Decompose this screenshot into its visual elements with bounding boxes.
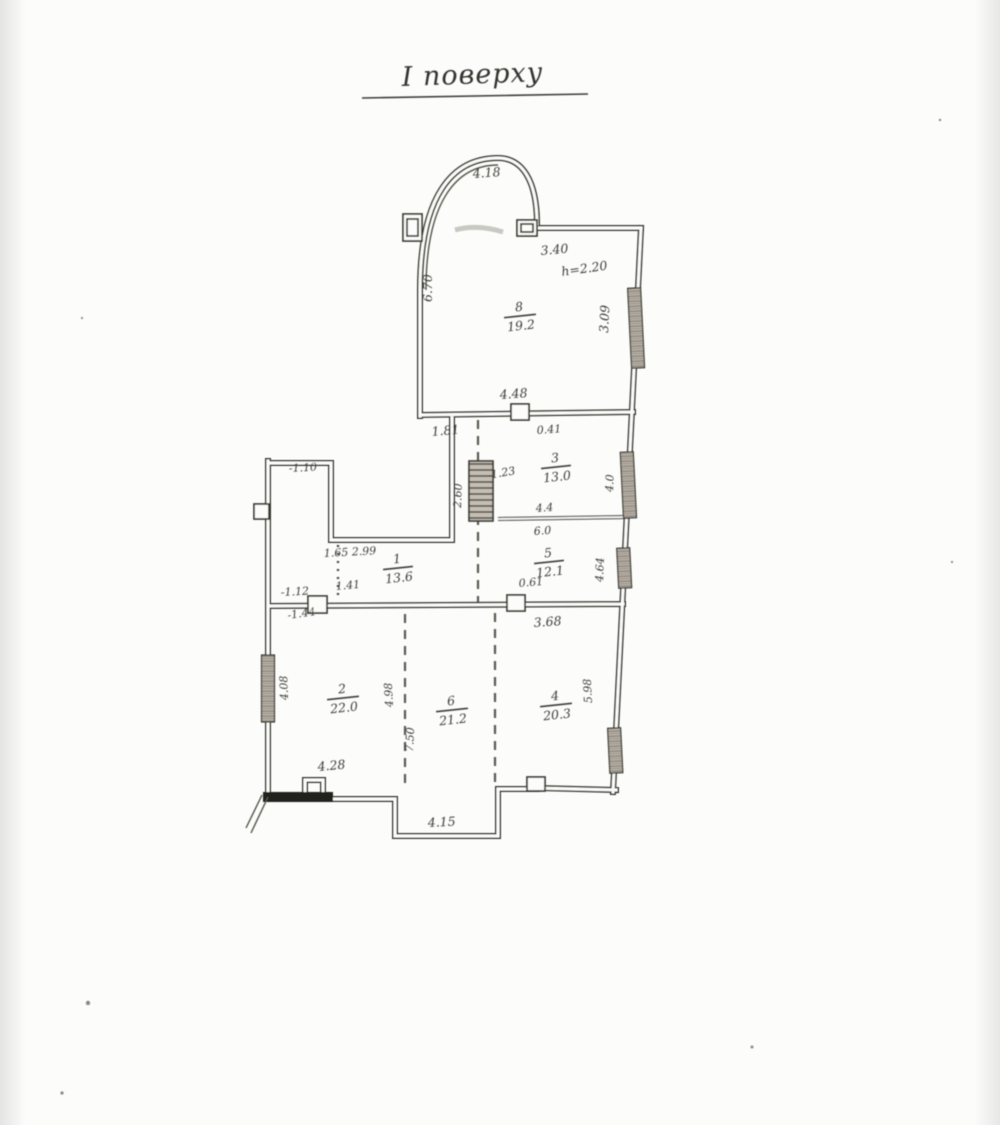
dim-door-left-level: -1.12 <box>280 585 309 599</box>
floor-plan-drawing: І поверху <box>0 0 1000 1125</box>
room-label-6: 6 21.2 <box>434 691 469 728</box>
outer-and-inner-walls <box>246 158 641 836</box>
dim-door-left-width: 1.41 <box>335 578 361 593</box>
corner-block-porch <box>527 777 545 791</box>
room-6-area: 21.2 <box>437 711 467 729</box>
pencil-smudge <box>455 227 503 232</box>
dim-span-left: 4.98 <box>382 682 396 708</box>
room-label-8: 8 19.2 <box>502 297 537 334</box>
door-block-top-entry-inner <box>521 224 533 232</box>
room-5-number: 5 <box>543 545 553 561</box>
door-block-toproom <box>511 404 529 420</box>
dim-notch-level: -1.10 <box>288 461 317 475</box>
room-label-4: 4 20.3 <box>538 686 573 723</box>
dim-opening-right: 0.41 <box>536 422 561 437</box>
dim-window-room3: 4.0 <box>603 474 617 493</box>
dim-hall-width: 3.68 <box>533 613 562 630</box>
dim-window-room5: 4.64 <box>593 557 607 583</box>
room-3-number: 3 <box>550 450 560 466</box>
dim-window-bottom-right: 5.98 <box>581 678 595 703</box>
room-3-area: 13.0 <box>542 468 571 486</box>
page-title: І поверху <box>400 57 544 93</box>
room-8-number: 8 <box>514 299 524 315</box>
dim-arc-width: 4.18 <box>471 164 501 181</box>
room-6-number: 6 <box>446 693 456 709</box>
dim-left-mark: -1.44 <box>287 605 317 622</box>
title-underline <box>362 94 588 98</box>
window-room3-right <box>620 452 636 519</box>
room-4-number: 4 <box>549 688 560 704</box>
dim-window-top-right: 3.09 <box>596 305 612 334</box>
room-1-area: 13.6 <box>384 569 413 587</box>
room-8-area: 19.2 <box>506 317 535 335</box>
dim-opening-left: 1.81 <box>431 422 460 439</box>
dim-ledge-width: 4.28 <box>316 757 346 774</box>
window-room5-right <box>617 548 632 589</box>
dim-porch-width: 4.15 <box>426 814 456 830</box>
window-left <box>262 655 275 722</box>
room-2-number: 2 <box>336 681 347 697</box>
dim-room3-width-above: 4.4 <box>534 501 553 515</box>
scanned-floor-plan-page: І поверху <box>0 0 1000 1125</box>
door-block-hall-right <box>507 595 525 611</box>
dim-height-note: h=2.20 <box>560 258 608 279</box>
pier-block-arc-inner <box>407 219 418 236</box>
dim-window-left: 4.08 <box>277 675 291 701</box>
dim-room5-door: 0.61 <box>518 575 544 590</box>
dim-stair-width: 2.60 <box>451 483 465 509</box>
room-label-2: 2 22.0 <box>325 679 360 716</box>
room-label-3: 3 13.0 <box>539 449 572 486</box>
dim-top-room-width: 4.48 <box>498 385 528 402</box>
dim-top-entry-width: 3.40 <box>540 241 569 258</box>
window-top-right <box>628 288 645 369</box>
dim-stair-size: 1.65 2.99 <box>323 544 376 560</box>
room-label-1: 1 13.6 <box>381 550 414 587</box>
window-bottom-right <box>608 728 623 774</box>
dim-left-wall-top-room: 6.70 <box>420 274 435 302</box>
drawing-title: І поверху <box>362 57 588 98</box>
room-1-number: 1 <box>392 551 401 567</box>
room-4-area: 20.3 <box>541 706 571 724</box>
pier-block-left-wall <box>254 504 269 519</box>
room-2-area: 22.0 <box>328 699 358 717</box>
door-blocks <box>254 214 545 791</box>
dim-span-right: 7.50 <box>403 727 417 752</box>
dim-room3-width-below: 6.0 <box>533 524 551 538</box>
